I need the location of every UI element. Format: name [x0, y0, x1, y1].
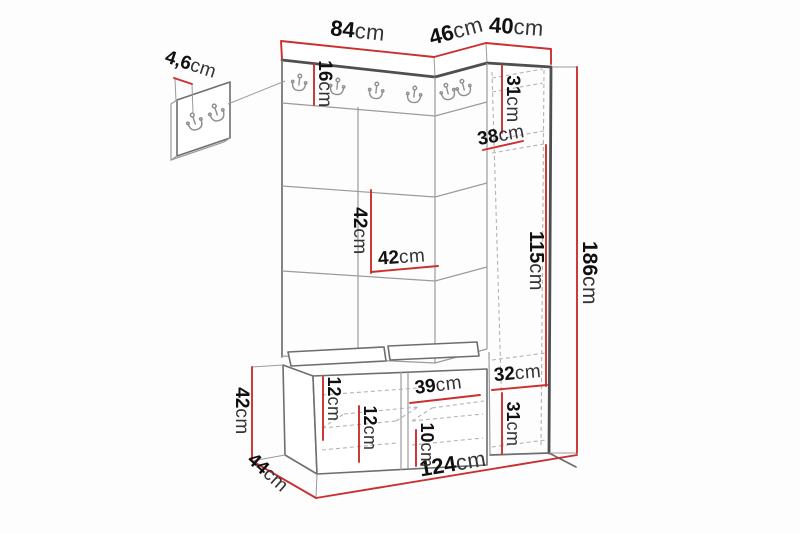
coat-hook-icon	[368, 81, 385, 99]
dimension-label-12cm-b: 12cm	[360, 405, 380, 450]
dimension-label-16cm: 16cm	[314, 60, 335, 107]
bench-cushion-right	[388, 342, 479, 360]
dimension-label-4-6cm: 4,6cm	[162, 47, 219, 83]
dimension-label-31cm-bottom: 31cm	[503, 401, 523, 446]
dimension-label-84cm: 84cm	[329, 15, 386, 46]
dimension-label-186cm: 186cm	[578, 241, 601, 305]
bench-cushion-left	[288, 347, 386, 366]
hook-panel-detail	[171, 79, 285, 160]
cabinet-right-edge	[549, 67, 551, 453]
furniture-dimension-drawing: 84cm 46cm 40cm 4,6cm 16cm 31cm 38cm 115c…	[0, 0, 800, 533]
dimension-label-40cm: 40cm	[488, 12, 544, 41]
diagram-canvas: 84cm 46cm 40cm 4,6cm 16cm 31cm 38cm 115c…	[0, 0, 800, 533]
dimension-label-31cm-top: 31cm	[502, 75, 523, 122]
dimension-label-44cm: 44cm	[243, 449, 292, 496]
coat-hook-icon	[406, 85, 423, 103]
dimension-label-46cm: 46cm	[426, 12, 485, 50]
dimension-label-12cm-a: 12cm	[324, 376, 344, 421]
coat-hook-icon	[291, 73, 308, 91]
coat-hook-icon	[454, 78, 473, 98]
dimension-label-38cm: 38cm	[476, 121, 526, 150]
cabinet-bottom-edge	[490, 453, 549, 455]
coat-hook-icon	[438, 82, 457, 102]
dimension-label-10cm: 10cm	[417, 422, 437, 467]
dimension-label-42cm-vertical: 42cm	[349, 207, 370, 254]
dimension-label-42cm-bench: 42cm	[231, 387, 252, 434]
dimension-label-115cm: 115cm	[525, 231, 547, 291]
dimension-label-42cm-horizontal: 42cm	[377, 245, 426, 269]
detail-callout-line	[228, 81, 285, 104]
dimension-line-4-6cm	[174, 78, 192, 84]
dimension-line-32cm	[492, 385, 547, 390]
dimension-label-32cm: 32cm	[493, 361, 542, 386]
bench-left-face	[283, 365, 317, 474]
